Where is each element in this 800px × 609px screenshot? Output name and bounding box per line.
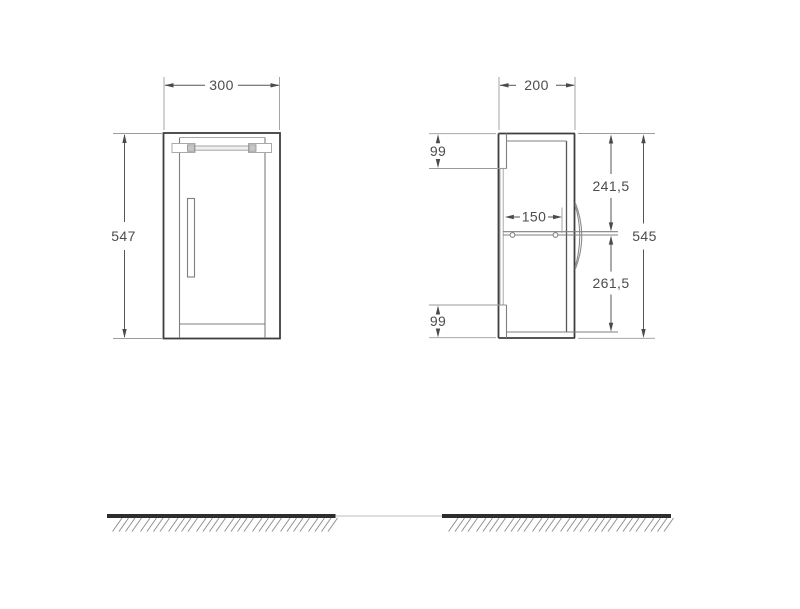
ground-section [107, 516, 674, 532]
side-top-offset-dimension: 99 [429, 134, 506, 169]
technical-drawing-page: 300 547 [0, 0, 800, 609]
left-bracket-pin [188, 145, 195, 152]
side-bottom-offset-label: 99 [430, 313, 446, 329]
side-door-handle [575, 202, 582, 270]
shelf-pin-right [553, 233, 558, 238]
front-width-label: 300 [209, 77, 234, 93]
front-door-handle [188, 199, 195, 278]
front-view: 300 547 [111, 77, 280, 339]
side-bottom-offset-dimension: 99 [429, 305, 506, 338]
front-height-dimension: 547 [111, 134, 162, 339]
side-total-height-label: 545 [632, 228, 657, 244]
side-back-structure [499, 134, 507, 339]
front-cabinet-outline [164, 133, 281, 339]
right-bracket-pin [249, 145, 256, 152]
shelf-pin-left [510, 233, 515, 238]
side-view: 200 99 241,5 150 [429, 77, 657, 338]
hanging-rail [195, 146, 249, 150]
side-shelf-depth-label: 150 [522, 209, 547, 225]
side-shelf-depth-dimension: 150 [505, 208, 562, 234]
side-shelf [503, 232, 618, 238]
front-width-dimension: 300 [164, 77, 280, 130]
cabinet-technical-drawing: 300 547 [0, 0, 800, 609]
front-mounting-brackets [172, 144, 272, 153]
ground-hatching [113, 518, 674, 532]
side-upper-section-label: 241,5 [592, 178, 629, 194]
front-height-label: 547 [111, 228, 136, 244]
side-total-height-dimension: 545 [578, 134, 657, 339]
side-depth-dimension: 200 [499, 77, 575, 130]
side-depth-label: 200 [524, 77, 549, 93]
side-lower-section-dimension: 261,5 [592, 236, 629, 332]
side-top-offset-label: 99 [430, 143, 446, 159]
side-lower-section-label: 261,5 [592, 275, 629, 291]
side-upper-section-dimension: 241,5 [592, 135, 629, 232]
